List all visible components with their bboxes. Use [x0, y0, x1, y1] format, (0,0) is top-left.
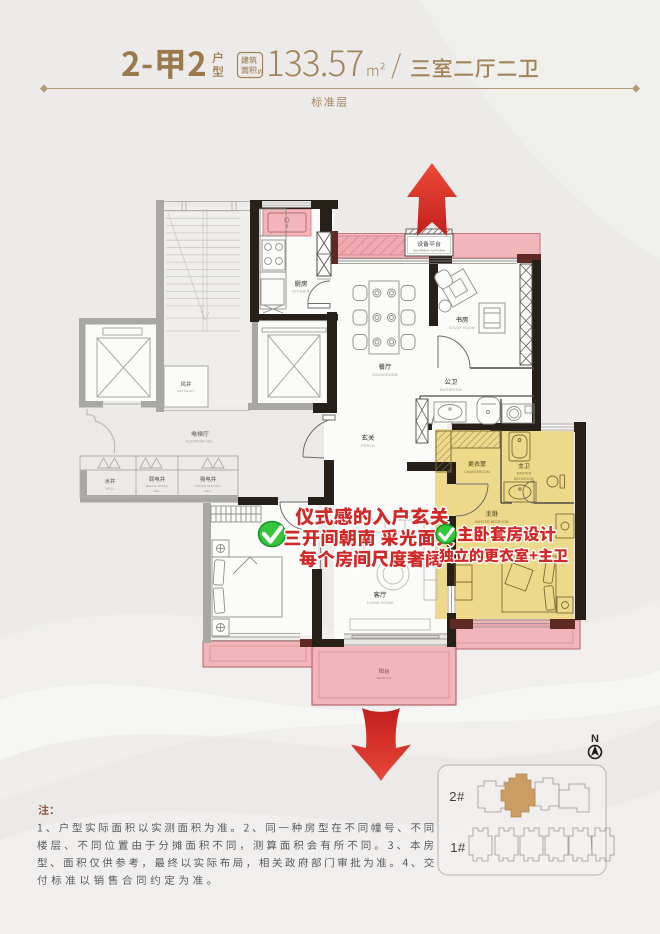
svg-text:WELL: WELL	[153, 489, 161, 493]
svg-text:ELEVATOR HALL: ELEVATOR HALL	[186, 440, 214, 444]
svg-text:STUDY ROOM: STUDY ROOM	[449, 326, 475, 330]
svg-text:2#: 2#	[449, 789, 465, 804]
svg-text:CHANGEROOM: CHANGEROOM	[464, 470, 490, 474]
svg-text:EQUIPMENT PLATFORM: EQUIPMENT PLATFORM	[413, 249, 445, 253]
svg-text:STRONG ELECTRIC: STRONG ELECTRIC	[195, 484, 221, 488]
svg-text:N: N	[591, 733, 599, 745]
svg-text:BATHROOM: BATHROOM	[440, 388, 462, 392]
svg-text:KITCHEN: KITCHEN	[293, 290, 310, 294]
svg-text:DININGROOM: DININGROOM	[372, 373, 397, 377]
svg-text:PORCH: PORCH	[361, 444, 375, 448]
svg-text:WEAK ELECTRIC: WEAK ELECTRIC	[146, 484, 169, 488]
svg-text:MASTER: MASTER	[517, 472, 532, 476]
svg-text:TERRACE: TERRACE	[376, 676, 392, 680]
svg-text:WELL: WELL	[106, 487, 115, 491]
svg-text:BATHROOM: BATHROOM	[514, 477, 534, 481]
svg-text:WELL: WELL	[204, 489, 212, 493]
svg-text:MASTER BEDROOM: MASTER BEDROOM	[475, 520, 509, 524]
svg-text:AIR SHAFT: AIR SHAFT	[177, 389, 194, 393]
svg-text:1#: 1#	[450, 840, 466, 855]
svg-text:LIVING ROOM: LIVING ROOM	[367, 601, 393, 605]
